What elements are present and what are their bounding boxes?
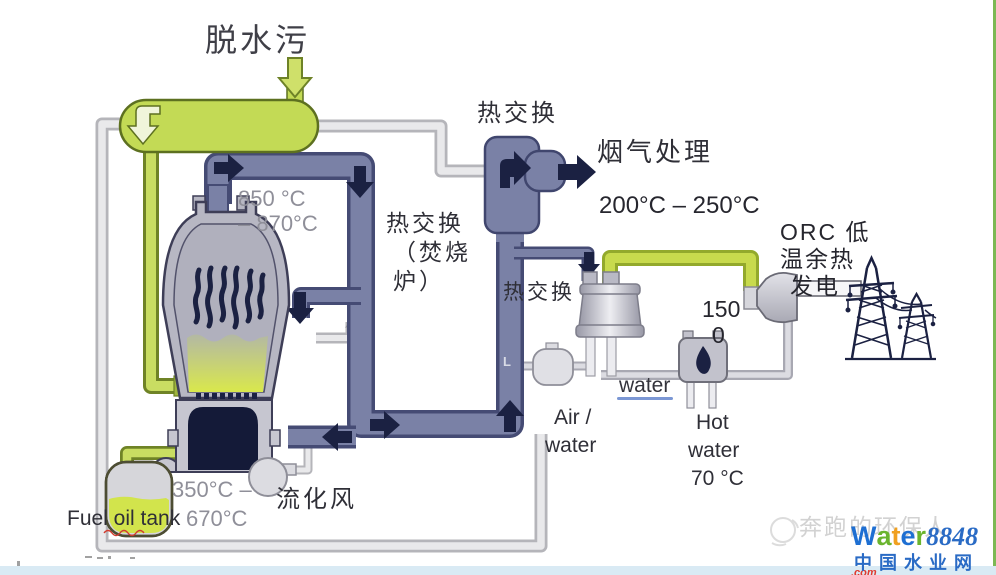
label-air-water-2: water — [545, 434, 596, 458]
heat-exchanger-mid — [576, 272, 644, 376]
brand-letter-t: t — [892, 521, 901, 552]
water-underline — [617, 397, 673, 400]
label-water: water — [619, 374, 670, 398]
title-dewatered-sludge: 脱水污 — [205, 22, 310, 59]
label-1500-b: 0 — [712, 322, 725, 348]
label-fuel-oil-tank: Fuel oil tank — [67, 507, 180, 531]
heat-exchanger-top — [485, 137, 596, 242]
label-tank-range-1: 350°C – — [172, 477, 252, 502]
label-hx-furnace-1: 热交换 — [386, 210, 464, 236]
label-hx-furnace-2: （焚烧 — [393, 239, 471, 265]
label-hot-1: Hot — [696, 411, 729, 435]
label-tank-range-2: 670°C — [186, 506, 247, 531]
label-air-water-1: Air / — [554, 406, 591, 430]
label-flue-temp-range: 200°C – 250°C — [599, 192, 760, 220]
label-fluidizing-air: 流化风 — [276, 486, 357, 514]
transmission-towers-icon — [845, 258, 936, 359]
diagram-canvas — [0, 0, 996, 575]
dryer-drum — [120, 80, 318, 152]
label-heat-exchange-top: 热交换 — [477, 100, 558, 128]
label-flue-gas-treatment: 烟气处理 — [597, 138, 713, 168]
process-diagram: 脱水污 热交换 烟气处理 200°C – 250°C 850 °C – 870°… — [0, 0, 996, 575]
label-hot-2: water — [688, 439, 739, 463]
brand-letter-a: a — [876, 521, 891, 552]
label-orc-3: 发电 — [790, 273, 840, 299]
fluidized-bed — [188, 407, 258, 470]
label-1500-a: 150 — [702, 296, 740, 322]
label-temp-870: – 870°C — [238, 211, 318, 236]
label-heat-exchange-mid: 热交换 — [503, 281, 575, 305]
brand-number: 8848 — [926, 522, 978, 552]
sludge-inlet-arrow-icon — [279, 58, 311, 97]
hx2-feed-pipe — [514, 253, 588, 281]
label-orc-1: ORC 低 — [780, 219, 871, 245]
label-hot-3: 70 °C — [691, 467, 744, 491]
brand-letter-r: r — [916, 521, 927, 552]
runner-logo-icon — [771, 518, 798, 545]
label-temp-850: 850 °C — [238, 186, 306, 211]
bottom-strip — [0, 566, 996, 575]
watermark-site-name: 中国水业网 — [854, 549, 979, 575]
brand-letter-e: e — [901, 521, 916, 552]
brand-letter-w: W — [851, 521, 876, 552]
air-water-pump — [533, 343, 573, 385]
label-hx-furnace-3: 炉） — [393, 268, 445, 294]
label-orc-2: 温余热 — [780, 246, 855, 272]
label-l-mark: L — [503, 355, 511, 370]
